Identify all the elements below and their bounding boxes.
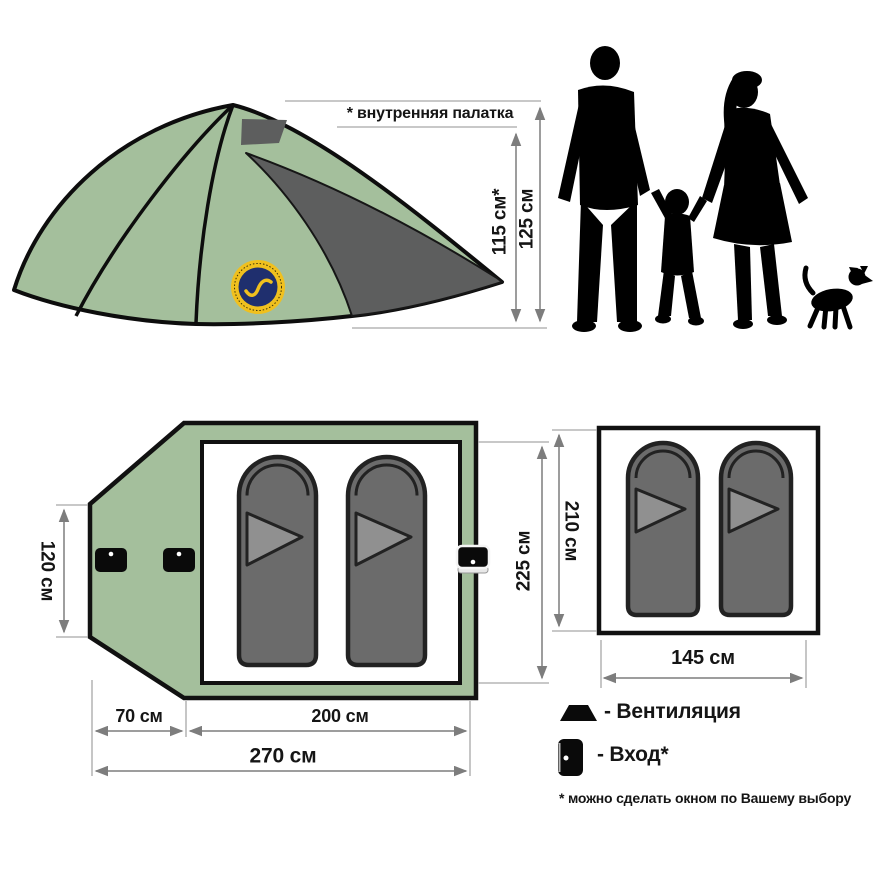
dim-label-inner-height: 115 см* (491, 189, 510, 256)
sleeping-bag (239, 457, 316, 665)
door-icon (95, 548, 127, 572)
sleeping-bag (628, 443, 698, 615)
man-silhouette (558, 46, 650, 332)
legend-footnote: * можно сделать окном по Вашему выбору (559, 791, 851, 805)
dog-silhouette (805, 266, 873, 327)
door-icon (163, 548, 195, 572)
family-silhouette (558, 46, 873, 332)
dim-label-vestibule-depth: 70 см (115, 707, 162, 725)
floor-plan-top-view (90, 423, 489, 698)
sleeping-bag (348, 457, 425, 665)
dim-label-inner-tent-depth: 210 см (562, 501, 581, 561)
woman-silhouette (702, 71, 808, 329)
door-icon (457, 546, 489, 573)
sleeping-bag (721, 443, 791, 615)
diagram-graphics (0, 0, 875, 875)
legend-ventilation-label: - Вентиляция (604, 701, 741, 722)
brand-logo-badge (231, 260, 285, 314)
dim-label-total-height: 125 см (518, 189, 537, 249)
tent-side-view (14, 105, 502, 324)
dim-label-inner-length: 200 см (311, 707, 368, 725)
side-view-note: * внутренняя палатка (347, 106, 514, 122)
legend-entrance-label: - Вход* (597, 744, 669, 765)
tent-spec-diagram: * внутренняя палатка 115 см* 125 см 120 … (0, 0, 875, 875)
dim-label-vestibule-width: 120 см (38, 541, 57, 601)
legend-icons (558, 705, 597, 776)
child-silhouette (651, 189, 707, 326)
dim-label-total-length: 270 см (250, 746, 317, 767)
dim-label-inner-depth: 225 см (515, 531, 534, 591)
dim-label-inner-tent-width: 145 см (671, 648, 735, 668)
inner-tent-plan (599, 428, 818, 633)
door-icon (558, 739, 583, 776)
vent-trapezoid-icon (560, 705, 597, 721)
